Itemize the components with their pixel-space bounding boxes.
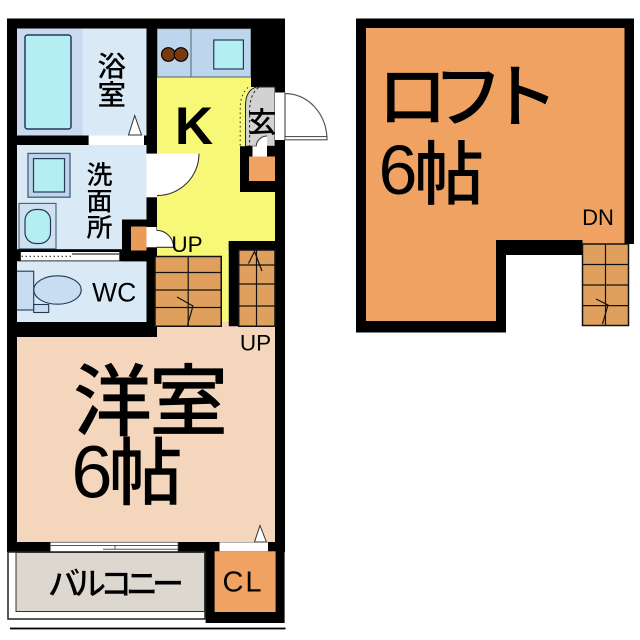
svg-text:6: 6: [71, 431, 112, 514]
svg-text:WC: WC: [92, 277, 136, 307]
svg-text:CL: CL: [222, 567, 263, 599]
svg-text:6: 6: [379, 131, 418, 209]
svg-text:UP: UP: [171, 232, 202, 257]
svg-text:DN: DN: [582, 205, 614, 230]
svg-text:K: K: [175, 97, 213, 156]
svg-text:UP: UP: [240, 331, 271, 356]
